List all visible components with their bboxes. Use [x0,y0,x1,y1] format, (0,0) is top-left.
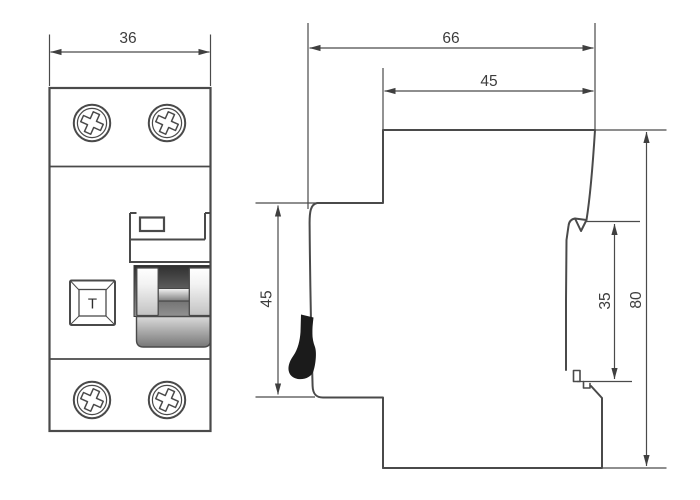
dim-label-total-height: 80 [628,291,645,309]
toggle-handle-bar [137,268,158,316]
dim-label-depth-upper: 45 [480,73,497,90]
terminal-screw-icon [149,382,185,418]
breaker-side-profile [310,130,602,468]
dim-label-depth-total: 66 [442,30,459,47]
terminal-screw-icon [149,105,185,141]
toggle-rocker-base [137,317,211,348]
front-view: 36 [50,30,211,431]
terminal-screw-icon [74,105,110,141]
terminal-screw-icon [74,382,110,418]
dim-label-front-height: 45 [259,290,276,307]
status-window [140,218,164,232]
side-view: 66 45 45 35 80 [256,23,667,468]
test-button-label: T [88,296,97,313]
dimension-drawing-page: 36 [0,0,700,500]
rocker-switch-icon [134,266,211,348]
side-toggle-lever-icon [288,315,315,380]
toggle-handle-bar [189,268,210,316]
dim-label-front-width: 36 [119,30,136,47]
drawing-canvas: 36 [0,0,700,500]
dim-label-rail-slot: 35 [597,292,614,309]
